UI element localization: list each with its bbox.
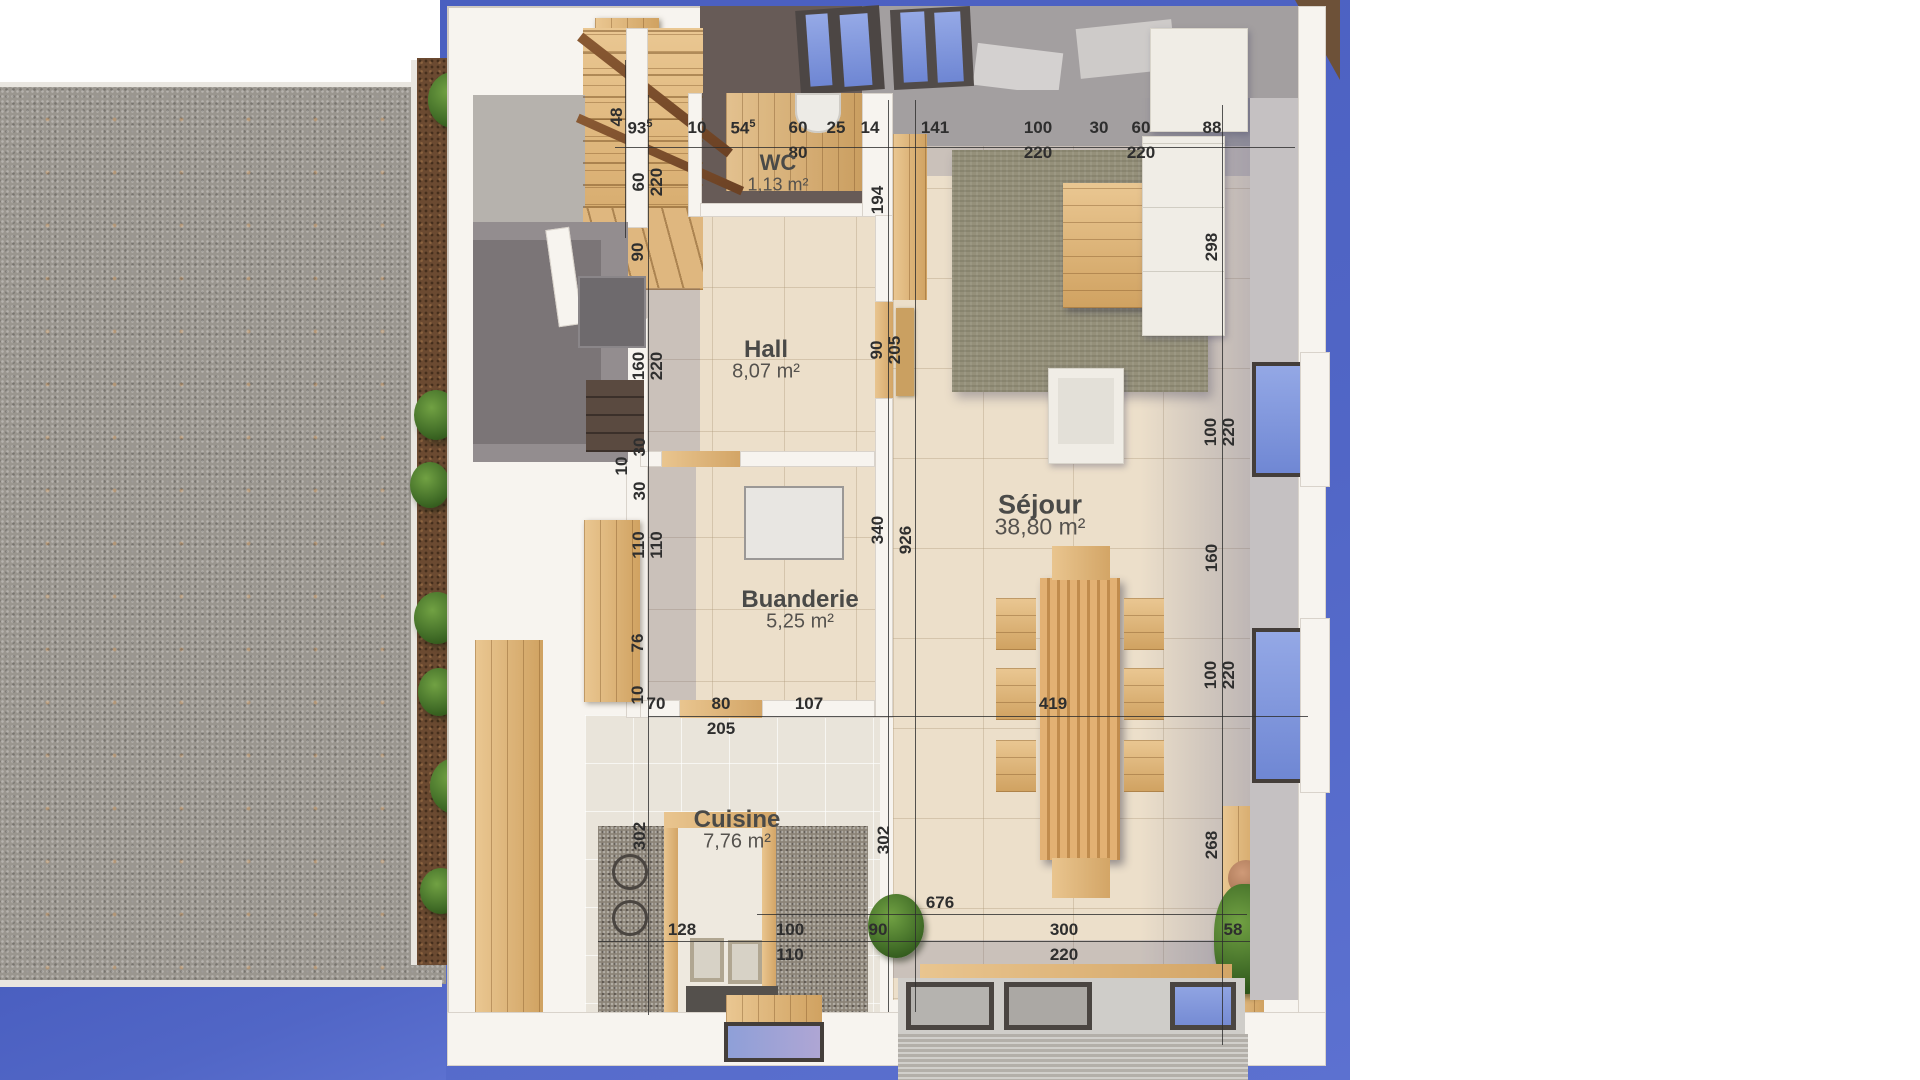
room-area-hall: 8,07 m² [732, 361, 800, 384]
room-area-sejour: 38,80 m² [995, 514, 1086, 541]
room-name-wc: WC [760, 150, 797, 176]
floorplan-scene: 9351054560802514141100220306022088486022… [0, 0, 1920, 1080]
room-label-layer: WC1,13 m²Hall8,07 m²Buanderie5,25 m²Cuis… [0, 0, 1920, 1080]
room-area-wc: 1,13 m² [747, 175, 808, 196]
room-area-cuisine: 7,76 m² [703, 831, 771, 854]
room-area-buanderie: 5,25 m² [766, 611, 834, 634]
